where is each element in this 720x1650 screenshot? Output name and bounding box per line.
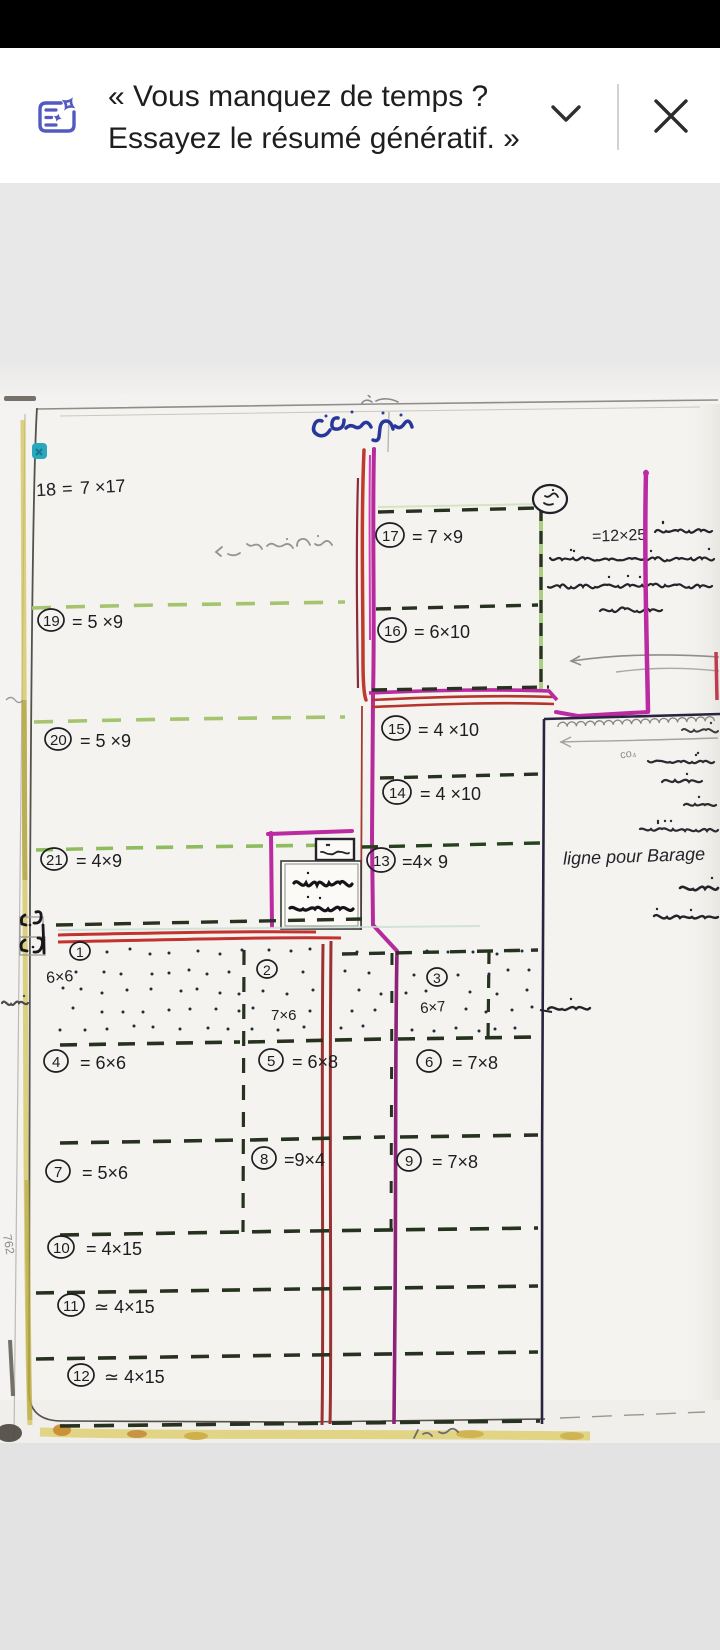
- svg-text:4: 4: [52, 1054, 60, 1071]
- svg-text:18: 18: [36, 479, 57, 500]
- svg-text:6: 6: [425, 1054, 433, 1071]
- svg-text:2: 2: [263, 962, 271, 978]
- svg-text:9: 9: [405, 1153, 413, 1170]
- svg-text:co₄: co₄: [619, 747, 637, 761]
- svg-text:= 4×9: = 4×9: [76, 851, 122, 871]
- svg-text:≃ 4×15: ≃ 4×15: [104, 1367, 165, 1387]
- svg-text:20: 20: [50, 732, 67, 749]
- svg-text:11: 11: [63, 1298, 79, 1315]
- svg-text:= 5 ×9: = 5 ×9: [72, 612, 123, 632]
- svg-text:=: =: [62, 478, 74, 499]
- svg-text:12: 12: [73, 1368, 90, 1385]
- svg-text:8: 8: [260, 1151, 268, 1168]
- svg-text:= 4×15: = 4×15: [86, 1239, 142, 1259]
- svg-text:≃ 4×15: ≃ 4×15: [94, 1297, 155, 1317]
- svg-text:14: 14: [389, 785, 406, 802]
- svg-text:= 6×10: = 6×10: [414, 622, 470, 642]
- svg-text:= 7×8: = 7×8: [432, 1152, 478, 1172]
- svg-text:1: 1: [76, 944, 84, 960]
- svg-text:16: 16: [384, 623, 401, 640]
- svg-text:=9×4: =9×4: [284, 1150, 325, 1170]
- svg-text:=12×25: =12×25: [592, 527, 647, 546]
- svg-text:3: 3: [433, 970, 441, 986]
- svg-text:= 4 ×10: = 4 ×10: [420, 784, 481, 804]
- svg-text:13: 13: [373, 853, 390, 870]
- svg-text:15: 15: [388, 721, 405, 738]
- svg-text:17: 17: [382, 528, 399, 545]
- svg-text:= 6×8: = 6×8: [292, 1052, 338, 1072]
- svg-text:7 ×17: 7 ×17: [79, 476, 126, 498]
- svg-text:6×7: 6×7: [419, 998, 446, 1017]
- svg-text:= 7×8: = 7×8: [452, 1053, 498, 1073]
- svg-text:7: 7: [54, 1164, 62, 1181]
- svg-text:7×6: 7×6: [271, 1007, 296, 1024]
- svg-text:10: 10: [53, 1240, 70, 1257]
- svg-text:=4× 9: =4× 9: [402, 852, 448, 872]
- svg-text:6×6: 6×6: [46, 968, 74, 987]
- svg-text:= 5×6: = 5×6: [82, 1163, 128, 1183]
- svg-text:19: 19: [43, 613, 60, 630]
- svg-text:= 6×6: = 6×6: [80, 1053, 126, 1073]
- svg-text:= 7 ×9: = 7 ×9: [412, 527, 463, 547]
- svg-text:= 4 ×10: = 4 ×10: [418, 720, 479, 740]
- svg-text:21: 21: [46, 852, 63, 869]
- svg-text:= 5 ×9: = 5 ×9: [80, 731, 131, 751]
- svg-text:5: 5: [267, 1053, 275, 1070]
